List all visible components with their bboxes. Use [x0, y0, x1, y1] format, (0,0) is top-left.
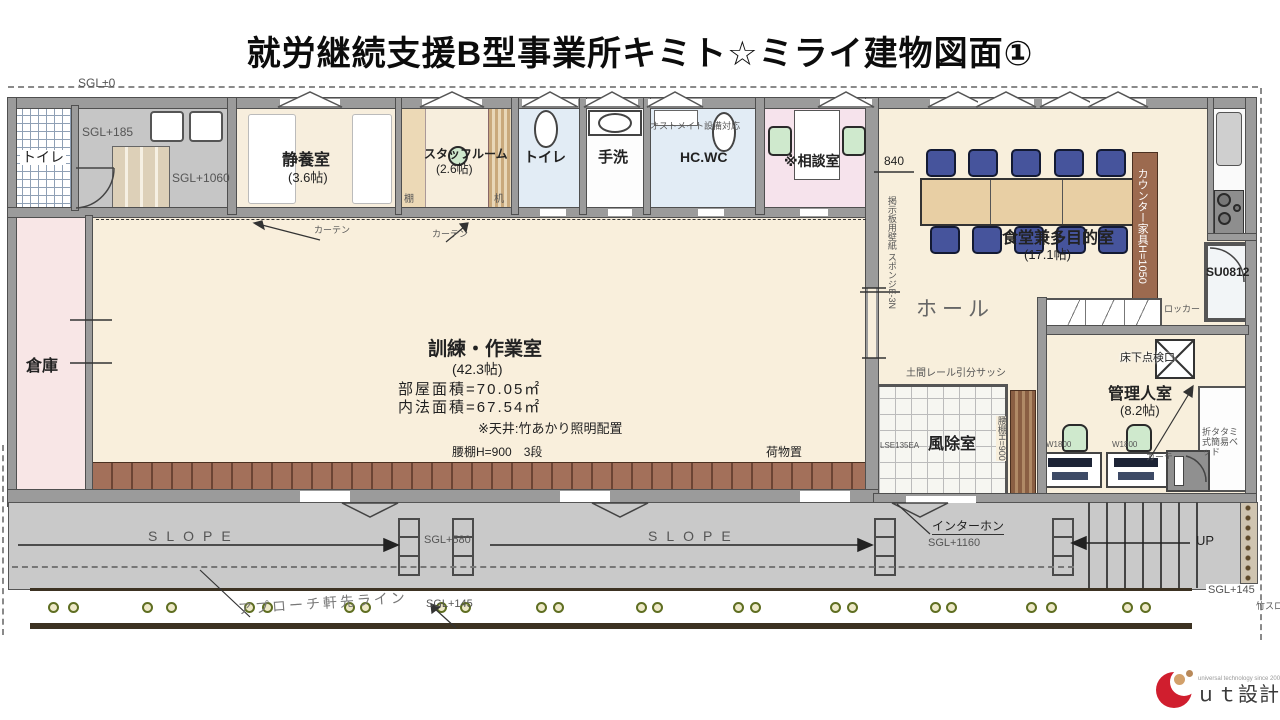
chair-icon [1011, 149, 1041, 177]
dining-table-divider [1062, 180, 1063, 224]
door-opening [540, 209, 566, 216]
label-ostomate: オストメイト設備対応 [650, 122, 740, 132]
label-storage: 倉庫 [26, 358, 58, 376]
entry-storage-box [150, 111, 184, 142]
slope-dashed-line [12, 566, 1074, 568]
wall-partition [72, 106, 78, 210]
label-handwash: 手洗 [598, 150, 628, 167]
entry-stairs [112, 146, 170, 212]
label-windbreak: 風除室 [928, 436, 976, 454]
wall-partition [512, 98, 518, 214]
futon [352, 114, 392, 204]
grating-strip [1240, 502, 1258, 584]
opening-hall [868, 288, 876, 358]
label-training-size: (42.3帖) [452, 362, 503, 377]
label-rest-room: 静養室 [282, 152, 330, 170]
chair-icon [926, 149, 956, 177]
waist-shelf-band [92, 462, 866, 490]
logo-tagline: universal technology since 2001 [1198, 676, 1280, 683]
label-dining-room: 食堂兼多目的室 [1002, 230, 1114, 248]
chair-icon [972, 226, 1002, 254]
chair-icon [768, 126, 792, 156]
label-hall: ホール [916, 298, 994, 321]
entrance-stairs [1072, 502, 1202, 588]
wall-right [1246, 98, 1256, 498]
label-shelf: 棚 [404, 194, 414, 205]
wall-partition [580, 98, 586, 214]
label-intercom: インターホン [932, 520, 1004, 535]
wall-left [8, 98, 16, 506]
company-logo: universal technology since 2001 ｕｔ設計 [1148, 666, 1274, 716]
wall-caretaker-top [1038, 326, 1248, 334]
right-boundary-line [1260, 88, 1262, 640]
label-wall-note: 掲示板用壁紙 スポンジE-3N [886, 196, 896, 309]
label-su0812: SU0812 [1206, 266, 1249, 279]
kitchen-sink [1216, 112, 1242, 166]
label-caretaker-size: (8.2帖) [1120, 404, 1160, 418]
label-waist-shelf-v: 腰棚H=900 [996, 416, 1006, 461]
logo-dot-icon [1174, 674, 1185, 685]
curtain-track-line [96, 219, 866, 220]
wall-top [8, 98, 1256, 108]
toilet-icon [534, 110, 558, 148]
approach-walkway [30, 588, 1192, 629]
keyboard-icon [1118, 472, 1154, 480]
label-desk-w1: W1800 [1046, 441, 1071, 450]
label-room-area: 部屋面積=70.05㎡ [398, 382, 541, 399]
entry-storage-box [189, 111, 223, 142]
label-up: UP [1196, 534, 1214, 548]
label-training-room: 訓練・作業室 [428, 340, 542, 361]
label-floor-hatch: 床下点検口 [1120, 352, 1175, 364]
label-desk-w2: W1800 [1112, 441, 1137, 450]
label-ceiling-note: ※天井:竹あかり照明配置 [478, 422, 623, 436]
label-sgl-zero: SGL±0 [78, 77, 115, 90]
logo-dot-icon [1186, 670, 1193, 677]
label-caretaker: 管理人室 [1108, 386, 1172, 404]
chair-icon [968, 149, 998, 177]
chair-icon [930, 226, 960, 254]
label-locker: ロッカー [1164, 305, 1200, 315]
door-opening [800, 491, 850, 502]
label-sgl-185: SGL+185 [82, 126, 133, 139]
left-boundary-line [2, 445, 4, 635]
room-su0812 [1204, 242, 1250, 322]
wall-caretaker-left [1038, 298, 1046, 500]
label-counter: カウンター家具H=1050 [1136, 168, 1148, 284]
label-inner-area: 内法面積=67.54㎡ [398, 400, 541, 417]
wall-storage-right [86, 216, 92, 490]
stove-burner-icon [1233, 204, 1241, 212]
wall-partition [396, 98, 401, 214]
door-opening [800, 209, 828, 216]
label-waist-shelf: 腰棚H=900 3段 [452, 446, 542, 459]
entrance-opening [906, 496, 976, 503]
wall-partition [228, 98, 236, 214]
door-opening [698, 209, 724, 216]
label-staff-room: スタッフルーム [424, 148, 508, 161]
label-luggage: 荷物置 [766, 446, 802, 459]
door-opening [560, 491, 610, 502]
room-storage [16, 216, 86, 490]
wall-kitchen-bottom [1208, 234, 1256, 240]
label-slope-1: SLOPE [148, 529, 240, 544]
label-sgl-580: SGL+580 [424, 534, 471, 546]
chair-icon [1054, 149, 1084, 177]
label-hcwc: HC.WC [680, 150, 727, 165]
label-sgl-145-walkway: SGL+145 [426, 598, 473, 610]
label-sgl-145-right: SGL+145 [1206, 584, 1257, 596]
page-title: 就労継続支援B型事業所キミト☆ミライ建物図面① [0, 26, 1280, 75]
label-toilet-mid: トイレ [524, 150, 566, 165]
wall-mid-horizontal [8, 208, 868, 217]
locker-row [1044, 298, 1162, 328]
sgl-zero-line [8, 86, 1258, 88]
door-opening [300, 491, 350, 502]
label-curtain-2: カーテン [432, 230, 468, 240]
label-rest-size: (3.6帖) [288, 171, 328, 185]
label-sgl-1060: SGL+1060 [172, 172, 230, 185]
wall-partition [644, 98, 650, 214]
chair-icon [842, 126, 866, 156]
label-folding-bed: 折タタミ式簡易ベッド [1202, 428, 1246, 458]
keyboard-icon [1052, 472, 1088, 480]
stove-burner-icon [1217, 193, 1231, 207]
door-opening [608, 209, 632, 216]
label-staff-size: (2.6帖) [436, 163, 473, 176]
toilet-icon [712, 112, 736, 152]
label-dim-840: 840 [884, 155, 904, 168]
label-doma-sash: 土間レール引分サッシ [906, 368, 1006, 379]
label-bamboo-slope: 竹スロープ [1256, 602, 1280, 612]
label-curtain-caretaker: カーテン [1146, 453, 1172, 463]
label-sgl-1160: SGL+1160 [928, 537, 980, 549]
label-dining-size: (17.1帖) [1024, 248, 1071, 262]
stove-burner-icon [1218, 212, 1231, 225]
label-lse: LSE135EA [880, 442, 919, 451]
wall-partition [756, 98, 764, 214]
dining-table [920, 178, 1134, 226]
windbreak-wood-slats [1010, 390, 1036, 494]
consult-table [794, 110, 840, 180]
chair-icon [1096, 149, 1126, 177]
floor-plan-page: 就労継続支援B型事業所キミト☆ミライ建物図面① [0, 0, 1280, 720]
door-leaf [1174, 456, 1184, 486]
monitor-icon [1048, 458, 1092, 467]
sink-basin-icon [598, 113, 632, 133]
label-consult: ※相談室 [784, 154, 840, 169]
dining-table-divider [990, 180, 991, 224]
wall-kitchen-left [1208, 98, 1213, 240]
label-curtain-1: カーテン [314, 226, 350, 236]
label-toilet-left: トイレ [20, 150, 66, 165]
label-slope-2: SLOPE [648, 529, 740, 544]
logo-name: ｕｔ設計 [1196, 684, 1280, 706]
label-desk: 机 [494, 194, 504, 205]
